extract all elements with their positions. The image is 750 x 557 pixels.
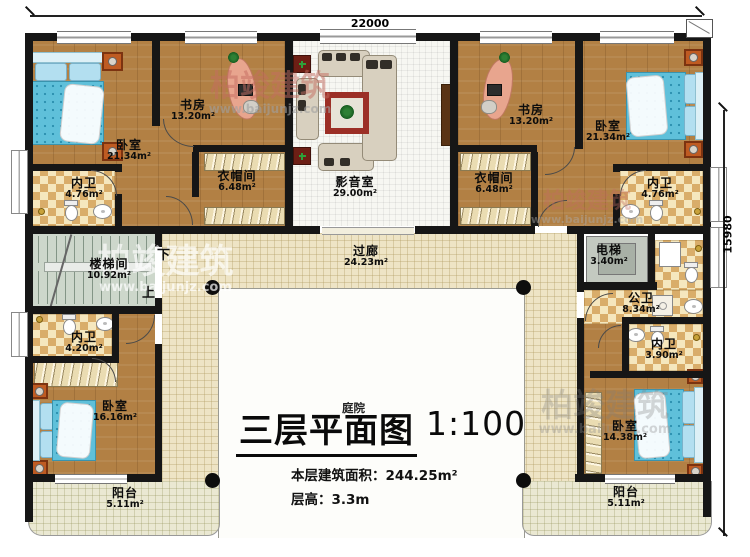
bed-blanket [59,83,105,145]
cushion [298,84,306,95]
nightstand [684,49,703,66]
bed-pillow [69,63,101,81]
toilet-icon [684,262,698,282]
nightstand [684,141,703,158]
courtyard-label: 庭院 [342,400,365,416]
plant-icon [340,105,354,119]
wall [567,226,711,234]
column [516,473,531,488]
column [205,473,220,488]
cushion [350,53,360,61]
wall [450,41,458,226]
dimension-line-right [723,110,725,536]
cushion [366,60,378,69]
room-label-study-tl: 书房 13.20m² [153,99,233,122]
room-label-bath-bl: 内卫 4.20m² [44,331,124,354]
cushion [380,60,392,69]
cushion [340,158,350,166]
wall [457,145,537,152]
window [605,474,675,484]
room-label-bath-br: 内卫 3.90m² [624,338,704,361]
wall [415,226,535,234]
wall [622,317,711,324]
sink-icon [621,204,640,219]
room-label-closet-tr: 衣帽间 6.48m² [454,172,534,195]
room-label-bath-tr: 内卫 4.76m² [620,177,700,200]
computer-monitor [487,84,502,96]
cushion [336,53,346,61]
sink-icon [684,299,703,314]
washing-machine [659,242,681,267]
wall [577,282,657,290]
room-label-media: 影音室 29.00m² [315,176,395,199]
wall [285,41,293,226]
room-label-corridor: 过廊 24.23m² [326,245,406,268]
floor-height-text: 层高：3.3m [291,488,369,508]
wall [193,145,285,152]
page-title: 三层平面图 [236,403,417,457]
window-sill [11,312,28,357]
toilet-icon [64,200,78,220]
stair-up-label: 上 [142,282,155,301]
room-label-bath-tl: 内卫 4.76m² [44,177,124,200]
wall [25,306,162,314]
closet-rack [204,207,285,225]
room-label-bedroom-bl: 卧室 16.16m² [75,400,155,423]
room-label-elevator: 电梯 3.40m² [569,244,649,267]
column [516,280,531,295]
bed-pillow [35,63,67,81]
bed-headboard [32,52,104,63]
nightstand [102,52,123,71]
desk-chair [243,100,259,114]
wall [155,344,162,482]
dimension-top-value: 22000 [330,17,410,30]
stair-down-label: 下 [157,244,170,263]
wall [577,318,584,474]
column [205,280,220,295]
opening-threshold [322,227,414,235]
toilet-icon [649,200,663,220]
dimension-right-value: 15980 [722,213,735,257]
wall [590,371,711,378]
room-label-balcony-br: 阳台 5.11m² [586,486,666,509]
closet-rack [460,153,531,171]
speaker-icon [293,147,311,165]
window [185,31,257,44]
cushion [322,53,332,61]
plant-icon [228,52,239,63]
faucet-icon [36,316,43,323]
faucet-icon [694,208,701,215]
faucet-icon [695,245,702,252]
plant-icon [499,52,510,63]
computer-monitor [238,84,253,96]
wall [613,164,710,171]
title-scale: 1:100 [426,404,526,443]
room-label-bedroom-tr: 卧室 21.34m² [568,120,648,143]
floor-area-text: 本层建筑面积：244.25m² [291,464,458,484]
room-label-public-bath: 公卫 8.34m² [601,292,681,315]
wall [25,33,33,522]
closet-rack [460,207,531,225]
room-label-bedroom-br: 卧室 14.38m² [585,420,665,443]
cushion [324,158,334,166]
window [57,31,131,44]
floor-plan: 柏竣建筑 www.baijunjz.com 柏竣建筑 www.baijunjz.… [0,0,750,557]
window [600,31,674,44]
wall [115,164,122,172]
room-label-balcony-bl: 阳台 5.11m² [85,487,165,510]
window [320,29,416,44]
speaker-icon [293,55,311,73]
faucet-icon [38,208,45,215]
window [55,474,127,484]
room-label-bedroom-tl: 卧室 21.34m² [89,139,169,162]
cushion [298,100,306,111]
window [480,31,552,44]
wall [613,164,620,172]
room-label-study-tr: 书房 13.20m² [491,104,571,127]
window-sill [11,150,28,214]
wall [25,226,320,234]
wall [613,194,620,226]
wall [25,164,122,171]
room-label-stairwell: 楼梯间 10.92m² [69,258,149,281]
sink-icon [93,204,112,219]
room-label-closet-tl: 衣帽间 6.48m² [197,170,277,193]
